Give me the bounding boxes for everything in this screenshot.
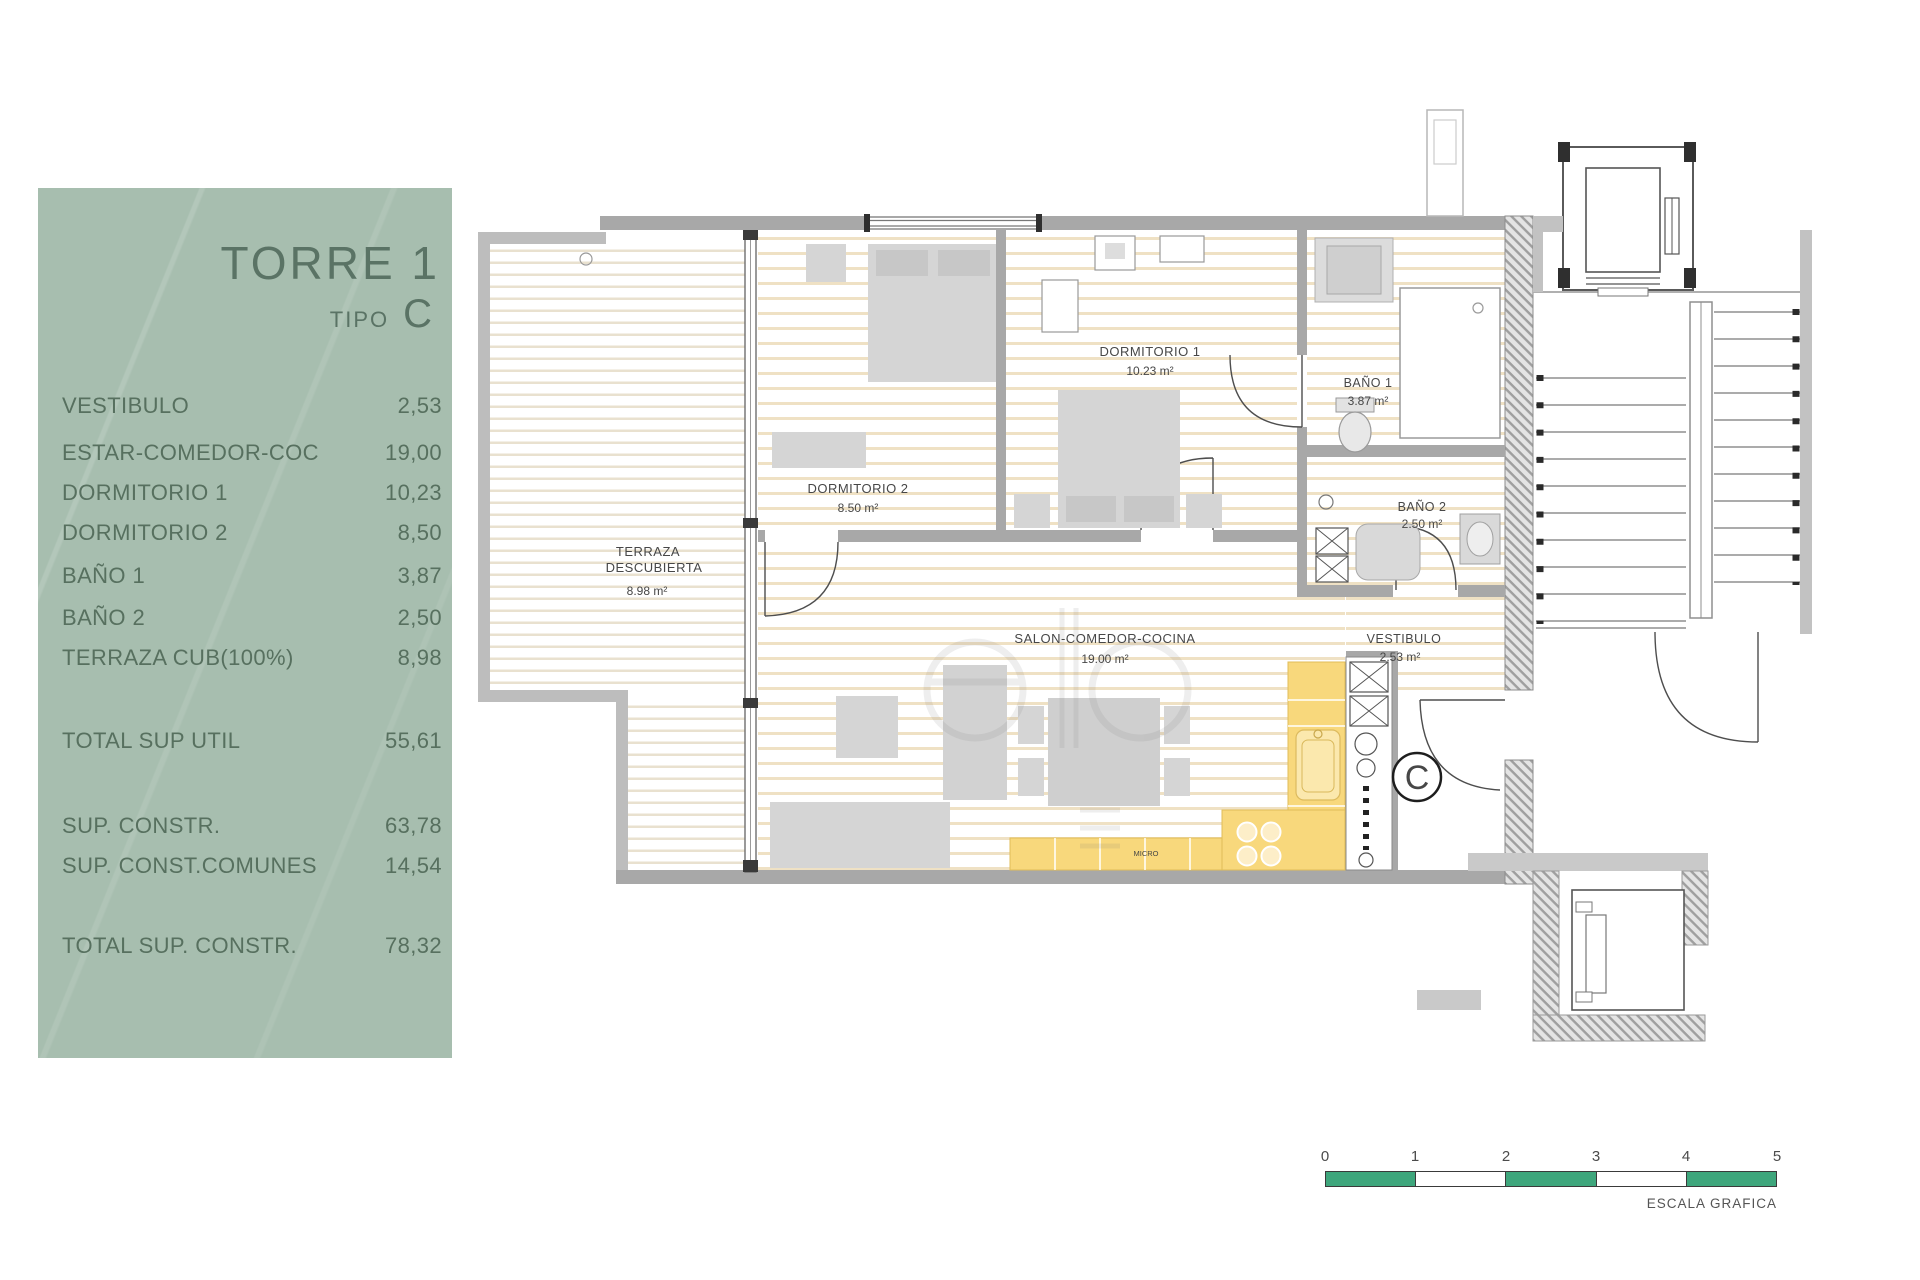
- party-wall-hatched-upper: [1505, 216, 1533, 690]
- shaft-wall-bottom: [1533, 1015, 1705, 1041]
- scale-tick-4: 4: [1675, 1148, 1697, 1165]
- shaft-wall-right: [1682, 871, 1708, 945]
- vestibulo-label: VESTIBULO: [1367, 632, 1442, 646]
- elevator-car: [1586, 168, 1660, 272]
- scale-segment: [1687, 1172, 1776, 1186]
- bano1-toilet-bowl: [1339, 412, 1371, 452]
- floor-plan: TERRAZA DESCUBIERTA 8.98 m² DORMITORIO 2…: [0, 0, 1920, 1280]
- stove-burner: [1262, 823, 1281, 842]
- scale-tick-1: 1: [1404, 1148, 1426, 1165]
- dining-table: [1048, 698, 1160, 806]
- terraza-label: TERRAZA: [616, 544, 680, 559]
- bano1-area: 3.87 m²: [1348, 394, 1389, 408]
- stair-landing-door: [1655, 632, 1758, 742]
- bano2-bidet: [1356, 524, 1420, 580]
- bano1-basin: [1327, 246, 1381, 294]
- bedroom-salon-wall-b: [838, 530, 1141, 542]
- stove-burner: [1238, 847, 1257, 866]
- utility-column: [1346, 657, 1392, 870]
- dorm1-bano1-wall-upper: [1297, 230, 1307, 355]
- scale-segment: [1506, 1172, 1595, 1186]
- bano2-left-wall: [1297, 457, 1307, 585]
- dorm2-side-table: [806, 244, 846, 282]
- dining-chair: [1018, 706, 1044, 744]
- glass-jamb: [743, 230, 758, 240]
- bano2-bottom-wall-b: [1458, 585, 1505, 597]
- car-door: [1576, 992, 1592, 1002]
- scale-tick-5: 5: [1766, 1148, 1788, 1165]
- scale-tick-0: 0: [1314, 1148, 1336, 1165]
- dorm1-side-table: [1186, 494, 1222, 528]
- glass-jamb: [743, 698, 758, 708]
- stove-burner: [1238, 823, 1257, 842]
- scale-segment: [1326, 1172, 1415, 1186]
- stair-right-wall: [1800, 230, 1812, 634]
- dorm1-closet: [1042, 280, 1078, 332]
- car-door: [1576, 902, 1592, 912]
- bano1-shower: [1400, 288, 1500, 438]
- vestibulo-area: 2.53 m²: [1380, 650, 1421, 664]
- scale-bar-label: ESCALA GRAFICA: [1577, 1196, 1777, 1211]
- bano1-label: BAÑO 1: [1344, 376, 1393, 390]
- shaft-corner: [1558, 142, 1570, 162]
- dining-chair: [1018, 758, 1044, 796]
- terraza-floor-ext: [628, 702, 746, 870]
- window-jamb: [1036, 214, 1042, 232]
- glass-jamb: [743, 860, 758, 872]
- vent-box: [1160, 236, 1204, 262]
- top-wall: [600, 216, 1505, 230]
- shaft-corner: [1558, 268, 1570, 288]
- scale-segment: [1596, 1172, 1687, 1186]
- scale-tick-2: 2: [1495, 1148, 1517, 1165]
- shaft-top-bar: [1468, 853, 1708, 871]
- dorm-divider-wall: [996, 230, 1006, 530]
- window-jamb: [864, 214, 870, 232]
- dorm1-side-table: [1014, 494, 1050, 528]
- terraza-parapet-left: [478, 232, 490, 702]
- bedroom-salon-wall-c: [1213, 530, 1307, 542]
- salon-label: SALON-COMEDOR-COCINA: [1014, 631, 1195, 646]
- dorm2-pillow: [876, 250, 928, 276]
- dormitorio1-label: DORMITORIO 1: [1099, 344, 1200, 359]
- bedroom-salon-wall-a: [758, 530, 765, 542]
- shaft-corner: [1684, 268, 1696, 288]
- salon-area: 19.00 m²: [1081, 652, 1128, 666]
- dormitorio2-label: DORMITORIO 2: [807, 481, 908, 496]
- bano2-area: 2.50 m²: [1402, 517, 1443, 531]
- vent-shaft: [1427, 110, 1463, 216]
- shaft-wall-left: [1533, 871, 1559, 1015]
- scale-bar: [1325, 1171, 1777, 1187]
- dormitorio2-area: 8.50 m²: [838, 501, 879, 515]
- stove-burner: [1262, 847, 1281, 866]
- terraza-parapet-bottom: [478, 690, 628, 702]
- dorm2-pillow: [938, 250, 990, 276]
- bano2-washbasin-bowl: [1467, 522, 1493, 556]
- dorm1-pillow: [1066, 496, 1116, 522]
- terraza-floor: [490, 244, 746, 690]
- stair-steps-right: [1714, 312, 1800, 582]
- terraza-area: 8.98 m²: [627, 584, 668, 598]
- scale-tick-3: 3: [1585, 1148, 1607, 1165]
- micro-label: MICRO: [1134, 849, 1159, 858]
- salon-armchair: [836, 696, 898, 758]
- dorm2-desk: [772, 432, 866, 468]
- bano2-bottom-wall-a: [1297, 585, 1393, 597]
- glass-jamb: [743, 518, 758, 528]
- terraza-parapet-vert: [616, 702, 628, 882]
- salon-sofa: [770, 802, 950, 868]
- terraza-parapet-top: [478, 232, 606, 244]
- dorm1-pillow: [1124, 496, 1174, 522]
- unit-marker-letter: C: [1405, 759, 1430, 797]
- bano1-bano2-wall: [1297, 445, 1505, 457]
- elevator-threshold: [1598, 288, 1648, 296]
- dormitorio1-area: 10.23 m²: [1126, 364, 1173, 378]
- terraza-label2: DESCUBIERTA: [606, 560, 703, 575]
- dining-chair: [1164, 758, 1190, 796]
- shaft-link-wall: [1533, 216, 1563, 232]
- bano2-label: BAÑO 2: [1398, 500, 1447, 514]
- unit-marker: C: [1393, 753, 1441, 801]
- shaft-link-wall-v: [1533, 232, 1543, 292]
- vent-box-inner: [1105, 243, 1125, 259]
- scale-segment: [1415, 1172, 1506, 1186]
- wall-stub: [1417, 990, 1481, 1010]
- stair-steps-left: [1536, 378, 1686, 621]
- shaft-corner: [1684, 142, 1696, 162]
